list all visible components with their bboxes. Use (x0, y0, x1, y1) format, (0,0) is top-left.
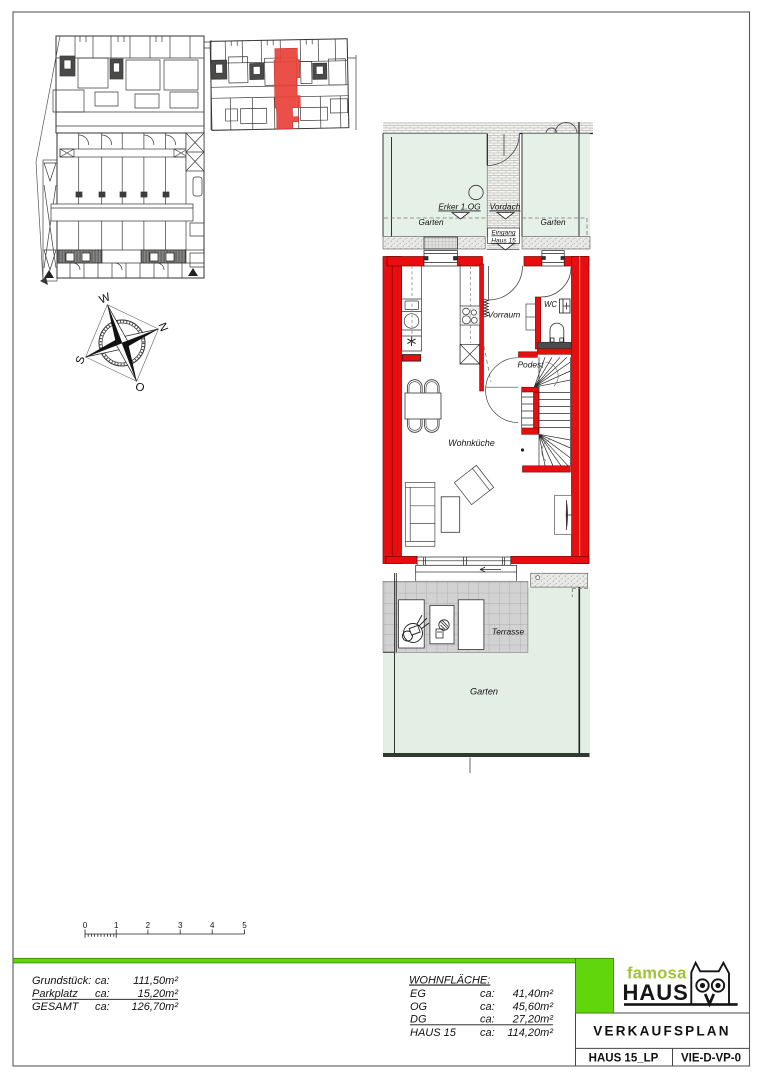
svg-text:Garten: Garten (540, 218, 565, 227)
svg-text:EG: EG (410, 988, 426, 1000)
svg-text:41,40m²: 41,40m² (513, 988, 554, 1000)
svg-text:Podest: Podest (517, 360, 544, 370)
svg-text:ca:: ca: (95, 1001, 110, 1013)
svg-text:1: 1 (114, 921, 119, 930)
svg-text:2: 2 (146, 921, 151, 930)
svg-text:111,50m²: 111,50m² (133, 975, 178, 987)
svg-text:0: 0 (83, 921, 88, 930)
svg-text:ca:: ca: (480, 1001, 495, 1013)
svg-text:Terrasse: Terrasse (492, 627, 525, 637)
svg-text:15,20m²: 15,20m² (138, 988, 179, 1000)
svg-text:45,60m²: 45,60m² (513, 1001, 554, 1013)
svg-text:ca:: ca: (95, 975, 110, 987)
svg-text:114,20m²: 114,20m² (507, 1027, 553, 1039)
svg-text:Garten: Garten (470, 687, 498, 697)
svg-text:VIE-D-VP-0: VIE-D-VP-0 (681, 1053, 741, 1065)
svg-text:OG: OG (410, 1001, 428, 1013)
svg-text:GESAMT: GESAMT (32, 1001, 80, 1013)
svg-text:ca:: ca: (95, 988, 110, 1000)
svg-text:HAUS 15: HAUS 15 (410, 1027, 457, 1039)
svg-text:Grundstück:: Grundstück: (32, 975, 91, 987)
svg-text:3: 3 (178, 921, 183, 930)
svg-text:VERKAUFSPLAN: VERKAUFSPLAN (593, 1024, 730, 1039)
svg-text:HAUS 15_LP: HAUS 15_LP (589, 1053, 659, 1065)
svg-text:ca:: ca: (480, 1014, 495, 1026)
svg-text:WC: WC (544, 300, 557, 309)
svg-text:Eingang: Eingang (491, 230, 516, 237)
svg-text:126,70m²: 126,70m² (132, 1001, 179, 1013)
svg-text:Vordach: Vordach (490, 202, 521, 212)
svg-text:HAUS: HAUS (623, 980, 689, 1005)
svg-text:ca:: ca: (480, 988, 495, 1000)
svg-text:WOHNFLÄCHE:: WOHNFLÄCHE: (409, 975, 490, 987)
svg-text:Garten: Garten (418, 218, 443, 227)
svg-text:ca:: ca: (480, 1027, 495, 1039)
svg-text:4: 4 (210, 921, 215, 930)
svg-text:DG: DG (410, 1014, 427, 1026)
svg-text:Parkplatz: Parkplatz (32, 988, 78, 1000)
svg-text:27,20m²: 27,20m² (512, 1014, 554, 1026)
svg-text:Wohnküche: Wohnküche (448, 438, 495, 448)
svg-text:Vorraum: Vorraum (488, 310, 521, 320)
svg-text:Erker 1.OG: Erker 1.OG (438, 202, 481, 212)
svg-text:5: 5 (242, 921, 247, 930)
